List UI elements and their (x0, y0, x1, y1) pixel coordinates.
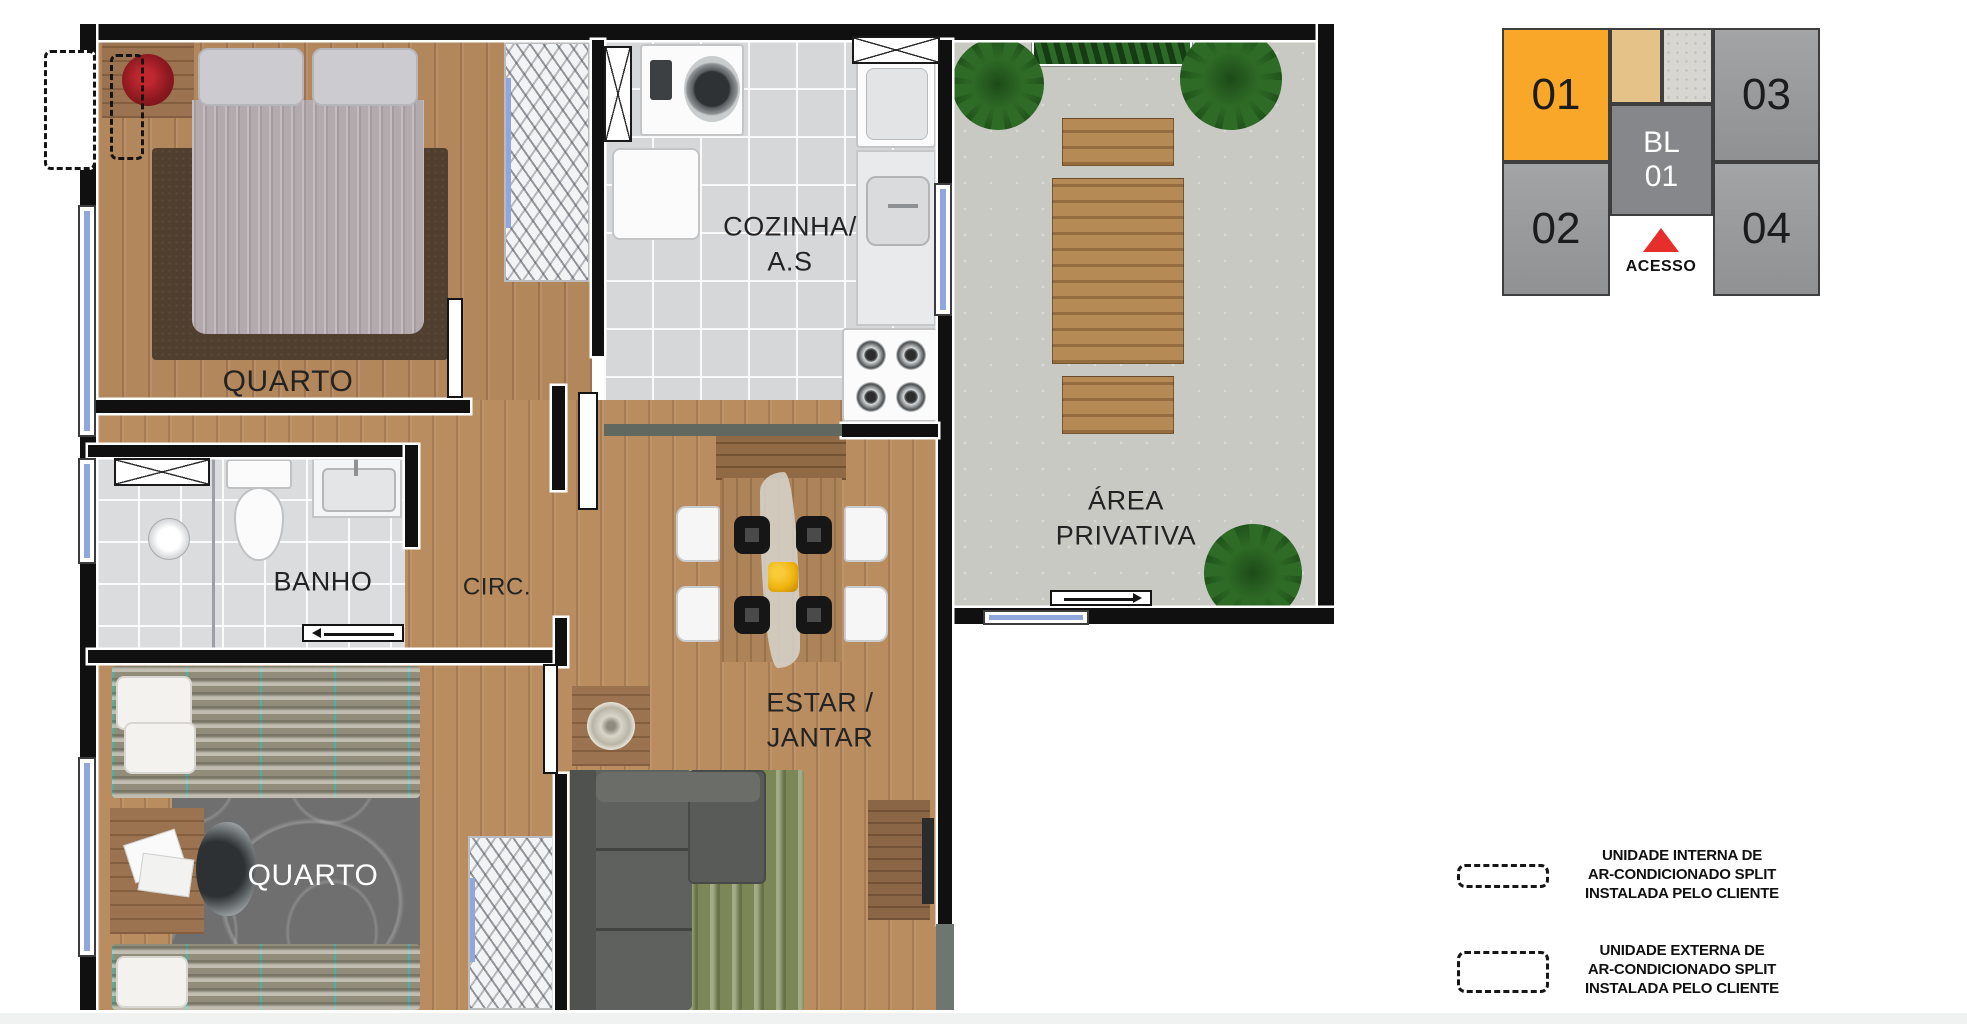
wall-bed1-bottom (88, 400, 470, 413)
window-bedroom2 (78, 757, 96, 957)
sofa-cushion (596, 772, 760, 802)
wall-bed1-kitchen (592, 40, 604, 356)
bed-duvet (192, 100, 424, 334)
tank-basin (866, 68, 928, 140)
bedroom1-wardrobe (504, 42, 590, 282)
internal-ac-unit-marker (110, 54, 144, 160)
label-bedroom2: QUARTO (248, 857, 379, 895)
tv-stand (868, 800, 930, 920)
side-table (572, 686, 650, 766)
external-ac-legend-icon (1457, 951, 1549, 993)
sofa-backrest (570, 770, 596, 1010)
picnic-bench-top (1062, 118, 1174, 166)
placemat (734, 516, 770, 554)
wardrobe-door-track (506, 78, 511, 228)
stove-burner (856, 340, 886, 370)
key-plan: 01 02 BL 01 03 04 ACESSO (1500, 26, 1822, 298)
wall-right-private (1318, 24, 1334, 624)
plant (952, 38, 1044, 130)
wardrobe-door-track (470, 878, 475, 962)
stove (842, 328, 938, 422)
placemat (734, 596, 770, 634)
wall-mid-right (938, 40, 952, 924)
kitchen-sink (866, 176, 930, 246)
access-label: ACESSO (1626, 258, 1697, 276)
kitchen-counter (856, 150, 936, 326)
dining-table (722, 478, 842, 662)
washer-panel (650, 60, 672, 100)
toilet (226, 459, 292, 563)
single-bed-pillow (124, 722, 196, 774)
access-arrow-icon (1643, 228, 1679, 252)
door-bedroom2 (543, 664, 558, 774)
wall-bath-top (88, 445, 418, 457)
toilet-bowl (234, 487, 284, 561)
key-plan-unit-01: 01 (1502, 28, 1610, 162)
centerpiece-flowers (768, 562, 798, 592)
unit-02-label: 02 (1532, 204, 1581, 254)
wall-bath-bed2 (88, 650, 567, 663)
kitchen-threshold (604, 424, 842, 436)
external-ac-unit-marker (44, 50, 96, 170)
washer-drum (684, 56, 740, 122)
label-bathroom: BANHO (273, 565, 372, 600)
placemat (796, 516, 832, 554)
window-kitchen-top (852, 36, 940, 64)
vanity-faucet (354, 458, 358, 476)
bedroom2-wardrobe (468, 836, 554, 1010)
unit-04-label: 04 (1742, 204, 1791, 254)
wall-bed2-side-a (555, 618, 567, 666)
single-bed-pillow (116, 956, 188, 1008)
dining-chair (676, 586, 720, 642)
double-bed (192, 42, 424, 334)
dining-chair (844, 506, 888, 562)
key-plan-unit-04: 04 (1713, 162, 1820, 296)
bottom-band (0, 1013, 1967, 1024)
key-plan-tan-cell (1610, 28, 1662, 104)
label-bedroom1: QUARTO (223, 363, 354, 401)
wall-living-stub (552, 386, 565, 490)
shower-head (148, 518, 190, 560)
toilet-tank (226, 459, 292, 489)
washing-machine (640, 44, 744, 136)
shower-glass-partition (212, 457, 215, 650)
door-living (578, 392, 598, 510)
laundry-tank (856, 58, 936, 148)
key-plan-concrete-cell (1662, 28, 1713, 104)
bed-pillow (198, 48, 304, 106)
window-bedroom1 (78, 205, 96, 437)
block-label: BL 01 (1643, 126, 1680, 193)
label-kitchen: COZINHA/ A.S (723, 209, 857, 278)
decor-bowl (587, 702, 635, 750)
wall-bath-right (405, 445, 418, 547)
placemat (796, 596, 832, 634)
internal-ac-legend-icon (1457, 864, 1549, 888)
wall-bed2-side-b (555, 774, 567, 1010)
stove-burner (856, 382, 886, 412)
wall-top (88, 24, 1334, 40)
wall-kitchen-bottom (842, 424, 938, 437)
door-bathroom (302, 624, 404, 642)
window-bathroom (114, 458, 210, 486)
low-wall-planter (936, 924, 954, 1010)
label-living-dining: ESTAR / JANTAR (766, 685, 873, 754)
key-plan-unit-03: 03 (1713, 28, 1820, 162)
external-ac-legend-text: UNIDADE EXTERNA DE AR-CONDICIONADO SPLIT… (1568, 941, 1796, 998)
sliding-door-private-area (983, 610, 1089, 625)
key-plan-unit-02: 02 (1502, 162, 1610, 296)
vanity-sink (322, 468, 396, 512)
stove-burner (896, 382, 926, 412)
door-bedroom1 (447, 298, 463, 398)
picnic-table (1052, 178, 1184, 364)
window-kitchen-left (604, 46, 632, 142)
bathroom-vanity (312, 458, 402, 518)
bed-pillow (312, 48, 418, 106)
window-kitchen-side (934, 183, 952, 316)
fridge (612, 148, 700, 240)
sink-faucet (888, 204, 918, 208)
unit-03-label: 03 (1742, 70, 1791, 120)
picnic-bench-bottom (1062, 376, 1174, 434)
internal-ac-legend-text: UNIDADE INTERNA DE AR-CONDICIONADO SPLIT… (1568, 846, 1796, 903)
sofa-body (570, 770, 692, 1010)
stove-burner (896, 340, 926, 370)
dining-chair (676, 506, 720, 562)
window-bathroom-side (78, 458, 96, 564)
desk-papers (138, 853, 195, 898)
label-circulation: CIRC. (463, 573, 531, 604)
door-private-area (1050, 590, 1152, 606)
dining-chair (844, 586, 888, 642)
tv (922, 818, 934, 904)
label-private-area: ÁREA PRIVATIVA (1056, 483, 1196, 552)
key-plan-block: BL 01 (1610, 104, 1713, 216)
unit-01-label: 01 (1532, 70, 1581, 120)
floor-plan-page: QUARTO COZINHA/ A.S ÁREA PRIVATIVA BANHO… (0, 0, 1967, 1024)
